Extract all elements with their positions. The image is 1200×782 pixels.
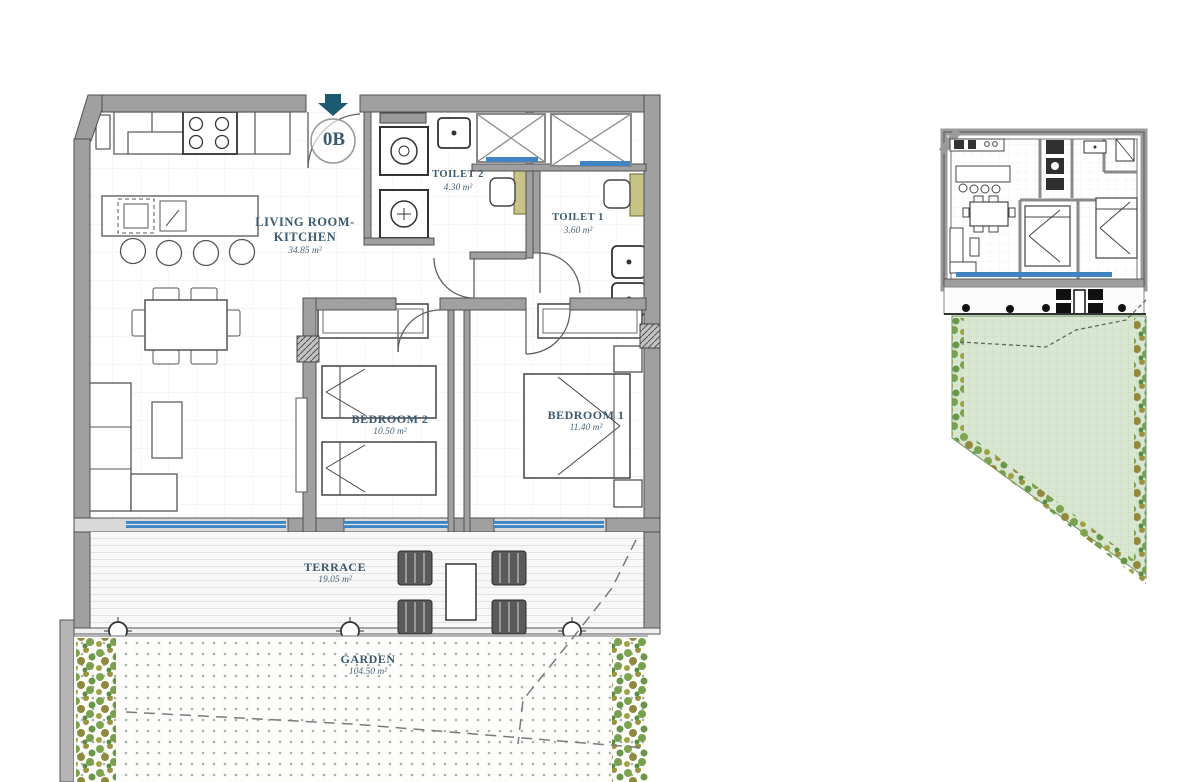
skylight-boxes <box>477 114 631 166</box>
mini-bed <box>1025 206 1070 266</box>
mini-chair-icon <box>1088 289 1103 300</box>
floor-plan-drawing <box>0 0 1200 782</box>
mini-window <box>956 272 1112 277</box>
toilet-icon <box>604 180 630 208</box>
mini-chair-icon <box>1088 303 1103 314</box>
mini-terrace <box>944 287 1146 314</box>
kitchen-island <box>102 196 258 266</box>
utility-closet <box>380 113 428 238</box>
structural-column <box>297 336 319 362</box>
single-bed <box>322 442 436 495</box>
single-bed <box>322 366 436 418</box>
mini-dining-table <box>970 202 1008 226</box>
unit-label: 0B <box>315 129 353 151</box>
washer-icon <box>380 127 428 175</box>
windows <box>126 521 604 528</box>
nightstand <box>614 346 642 372</box>
chair-icon <box>398 600 432 634</box>
bedroom2-furniture <box>318 304 436 495</box>
double-bed <box>524 374 630 478</box>
main-plan <box>60 94 660 782</box>
chair-icon <box>492 551 526 585</box>
coffee-table <box>152 402 182 458</box>
toilet-icon <box>490 178 515 206</box>
mini-chair-icon <box>1056 289 1071 300</box>
towel-radiator-icon <box>630 174 644 216</box>
skylight-icon <box>551 114 631 166</box>
flowerbed-border <box>76 638 116 782</box>
stove-icon <box>183 112 237 154</box>
structural-column <box>640 324 660 348</box>
terrace <box>74 532 660 645</box>
chair-icon <box>398 551 432 585</box>
dryer-icon <box>380 190 428 238</box>
skylight-icon <box>477 114 545 162</box>
wall-niche <box>296 398 307 492</box>
mini-chair-icon <box>1056 303 1071 314</box>
mini-site-plan <box>942 131 1146 578</box>
mini-bed <box>1096 198 1137 258</box>
terrace-table <box>446 564 476 620</box>
mini-table <box>1074 290 1085 314</box>
flowerbed-border <box>612 638 648 782</box>
chair-icon <box>492 600 526 634</box>
bedroom1-furniture <box>524 304 642 507</box>
mini-garden <box>952 300 1146 578</box>
nightstand <box>614 480 642 507</box>
floor-plan-page: 0B LIVING ROOM-KITCHEN 34.85 m² TOILET 2… <box>0 0 1200 782</box>
